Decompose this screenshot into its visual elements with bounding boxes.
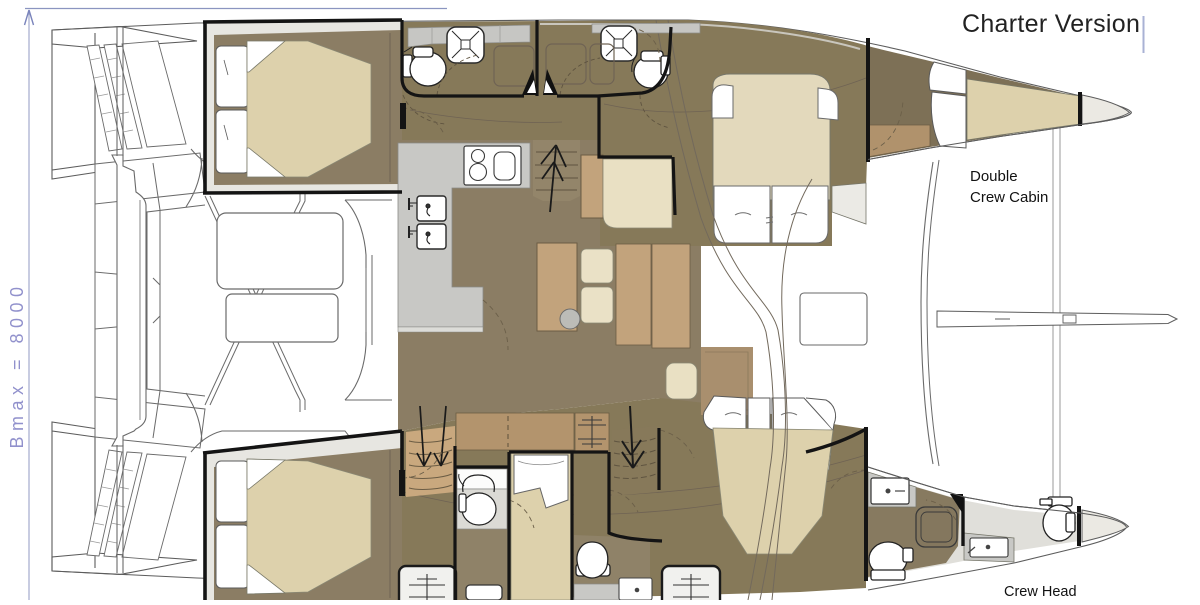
svg-text:Crew Cabin: Crew Cabin (970, 189, 1048, 206)
svg-text:Charter Version: Charter Version (962, 10, 1140, 38)
svg-text:Bmax = 8000: Bmax = 8000 (7, 281, 27, 448)
svg-text:Double: Double (970, 168, 1018, 185)
svg-text:Crew Head: Crew Head (1004, 584, 1077, 600)
